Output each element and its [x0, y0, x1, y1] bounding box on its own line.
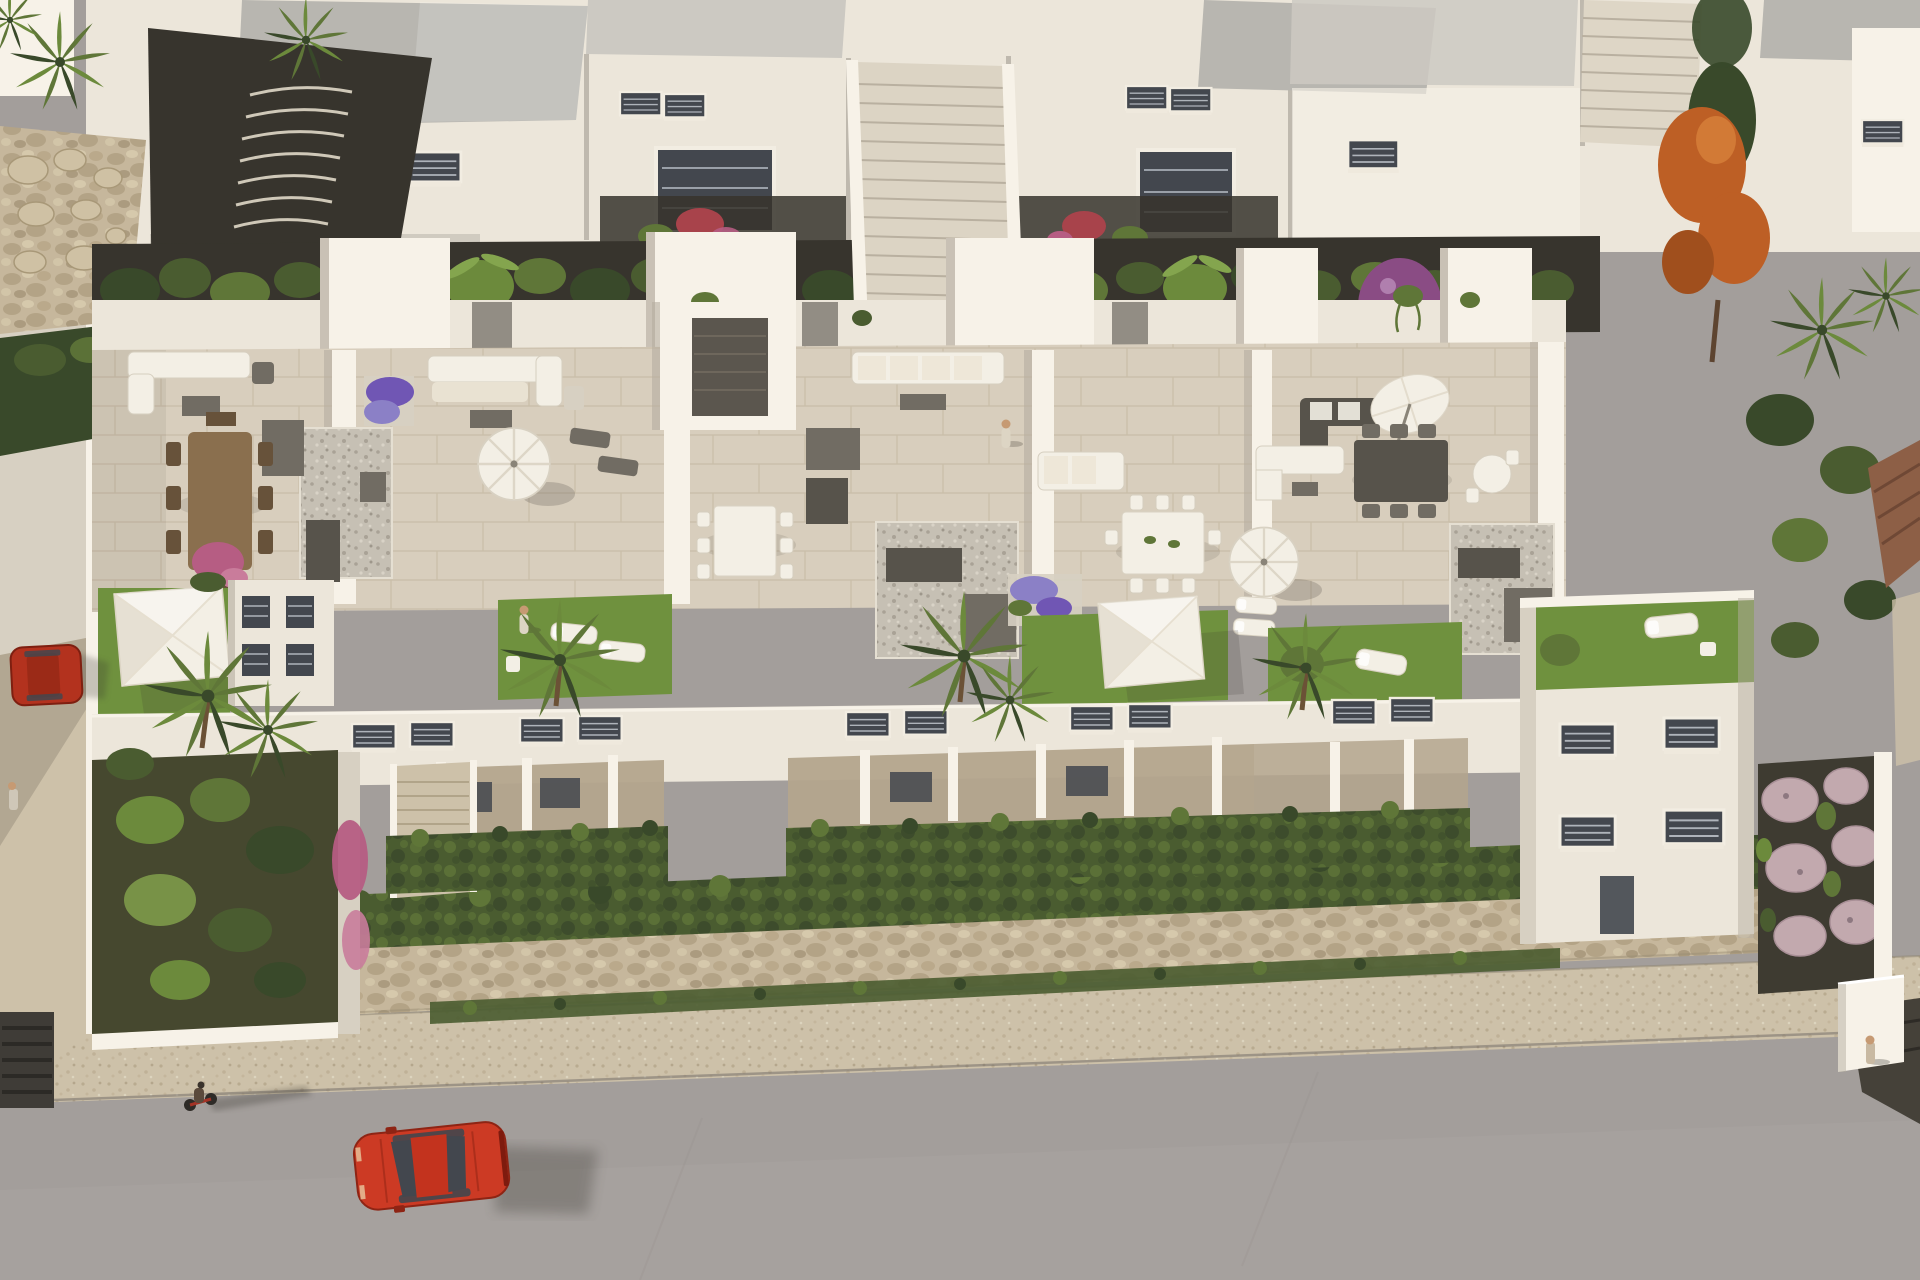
bougainvillea-pink: [332, 820, 368, 900]
drain-grate: [0, 1012, 54, 1108]
round-table: [1473, 455, 1511, 493]
shade-sail-2: [1098, 596, 1205, 688]
round-parasol-2: [1230, 528, 1299, 597]
roof-b4: [1290, 0, 1578, 86]
render-canvas: [0, 0, 1920, 1280]
hanging-plant: [1393, 285, 1423, 307]
end-villa: [1520, 590, 1754, 944]
aerial-architectural-render: [0, 0, 1920, 1280]
pink-mound-garden: [1756, 752, 1892, 994]
white-dining-table: [1122, 512, 1204, 574]
round-parasol-1: [478, 428, 550, 500]
shade-sail-1: [114, 586, 230, 686]
car-shadow: [495, 1146, 598, 1214]
roof-b2: [586, 0, 846, 58]
dark-dining-table: [1354, 440, 1448, 502]
left-front-garden: [92, 748, 370, 1050]
